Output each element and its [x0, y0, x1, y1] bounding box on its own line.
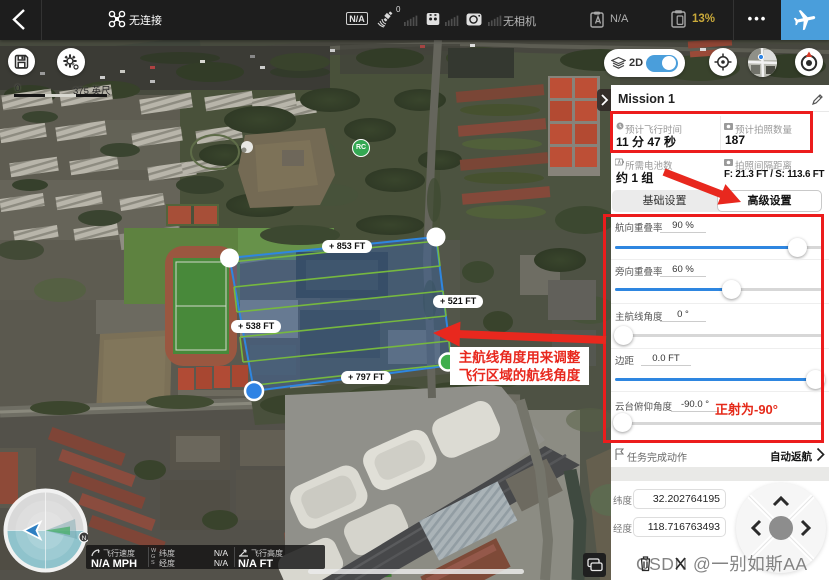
svg-text:N: N: [82, 535, 87, 542]
